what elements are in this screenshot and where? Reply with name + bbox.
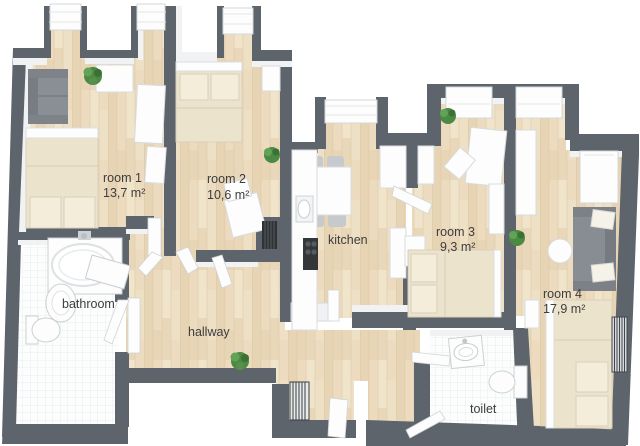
svg-text:13,7 m²: 13,7 m² (103, 186, 145, 200)
svg-text:toilet: toilet (470, 402, 497, 416)
svg-text:kitchen: kitchen (328, 233, 368, 247)
svg-text:room 2: room 2 (207, 172, 246, 186)
svg-text:bathroom: bathroom (62, 297, 115, 311)
svg-text:room 3: room 3 (436, 225, 475, 239)
svg-text:10,6 m²: 10,6 m² (207, 188, 249, 202)
svg-text:17,9 m²: 17,9 m² (543, 302, 585, 316)
svg-text:room 4: room 4 (543, 287, 582, 301)
svg-text:room 1: room 1 (103, 171, 142, 185)
svg-text:hallway: hallway (188, 325, 230, 339)
svg-text:9,3 m²: 9,3 m² (440, 240, 475, 254)
